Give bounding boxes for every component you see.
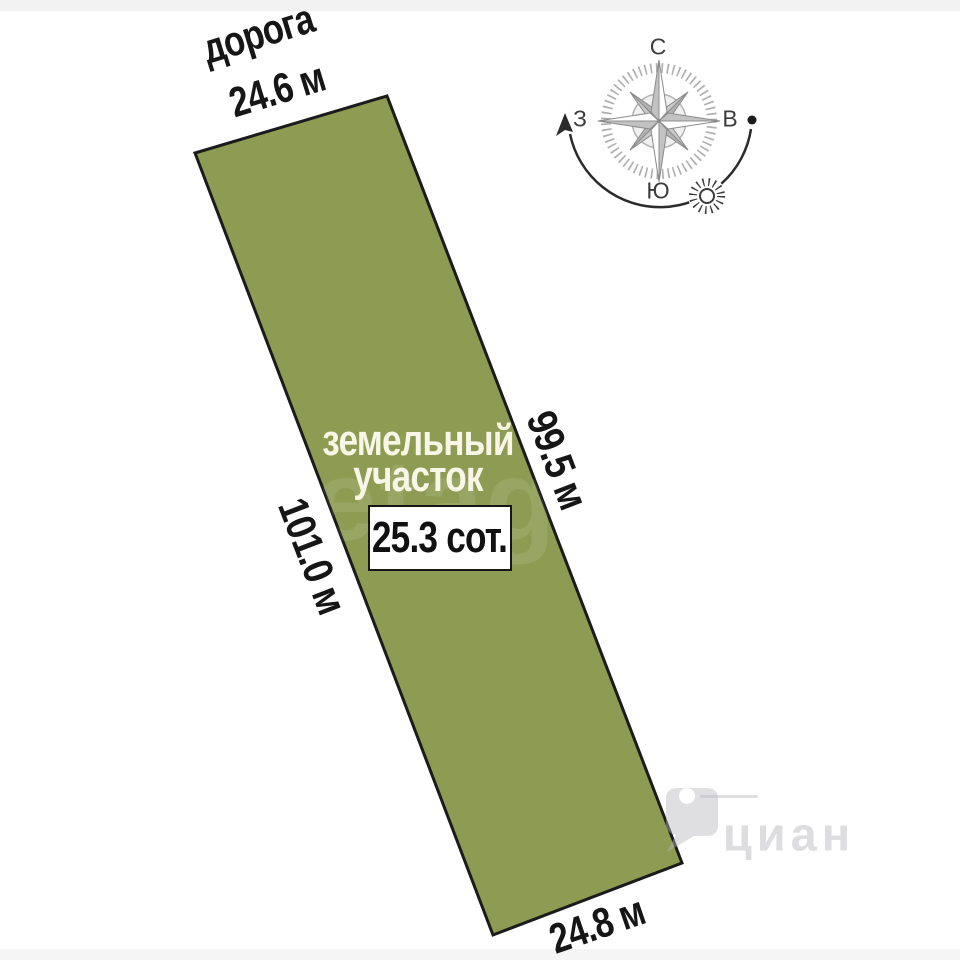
compass-east-label: В	[722, 106, 737, 133]
area-badge: 25.3 сот.	[368, 505, 512, 571]
compass-north-label: С	[650, 34, 667, 61]
east-marker-dot	[748, 116, 757, 125]
sun-icon	[688, 177, 726, 215]
compass-west-label: З	[573, 106, 587, 133]
land-plot-diagram: { "plot": { "name_line1": "земельный", "…	[0, 0, 960, 960]
compass-rose-icon	[598, 60, 720, 182]
arrowhead	[556, 113, 573, 136]
area-value: 25.3 сот.	[372, 513, 507, 563]
compass-south-label: Ю	[646, 178, 669, 205]
plot-title: земельный участок	[322, 423, 514, 495]
cian-watermark: циан	[723, 807, 855, 862]
compass-star	[598, 60, 720, 182]
